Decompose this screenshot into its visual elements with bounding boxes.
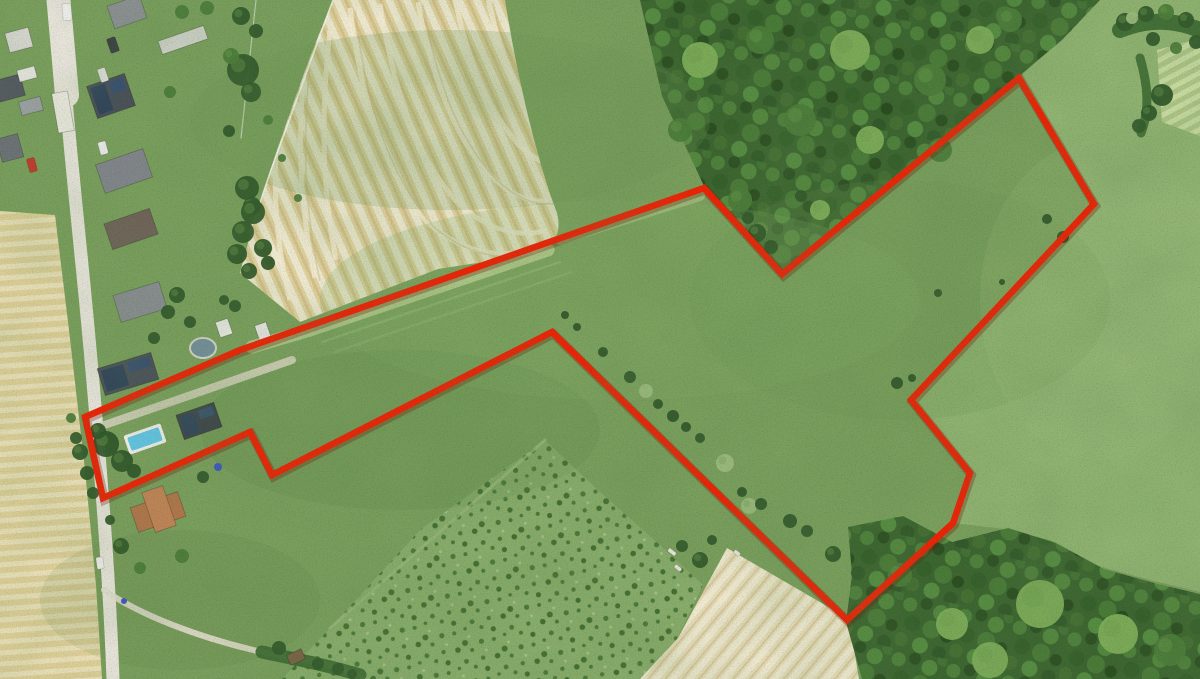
photo-grain-overlay <box>0 0 1200 679</box>
satellite-map-view[interactable] <box>0 0 1200 679</box>
aerial-imagery <box>0 0 1200 679</box>
